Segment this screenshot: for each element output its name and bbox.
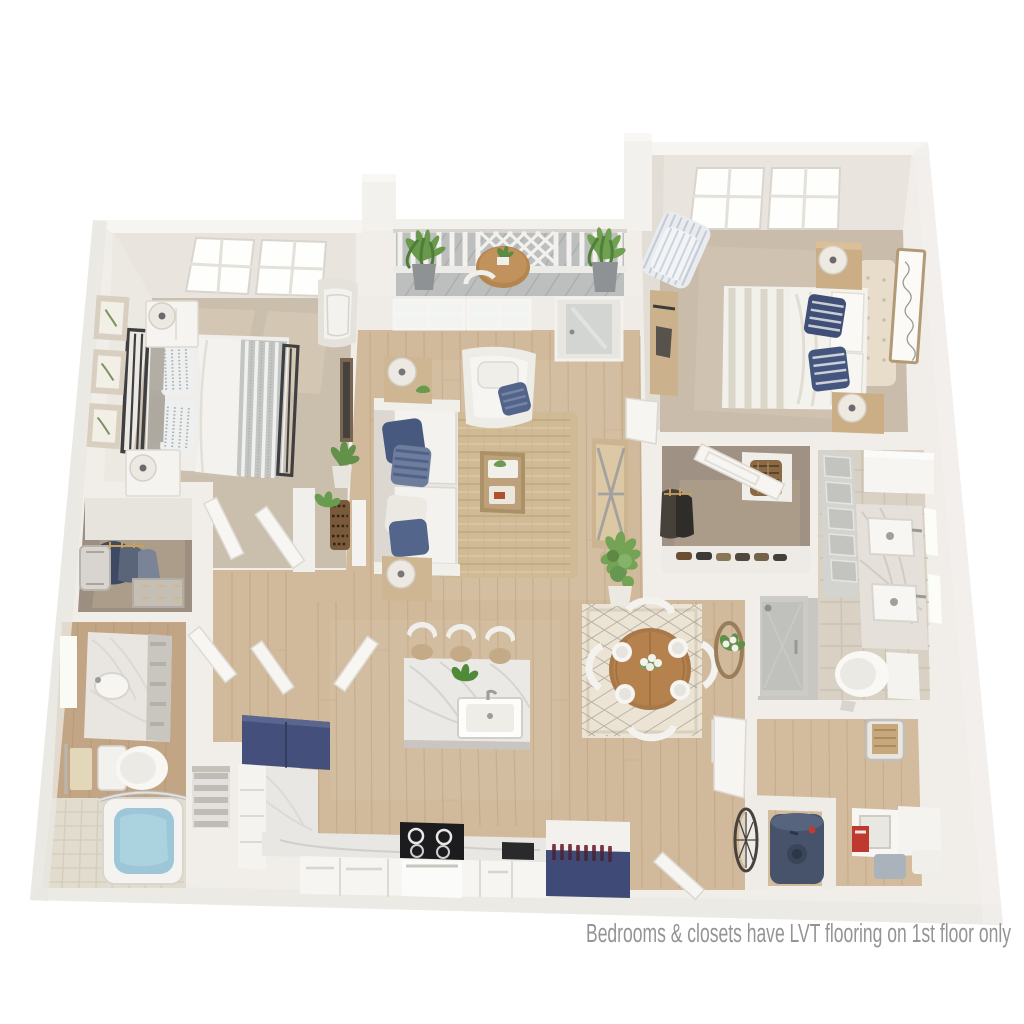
- svg-text:Bedrooms & closets have LVT fl: Bedrooms & closets have LVT flooring on …: [586, 920, 1011, 948]
